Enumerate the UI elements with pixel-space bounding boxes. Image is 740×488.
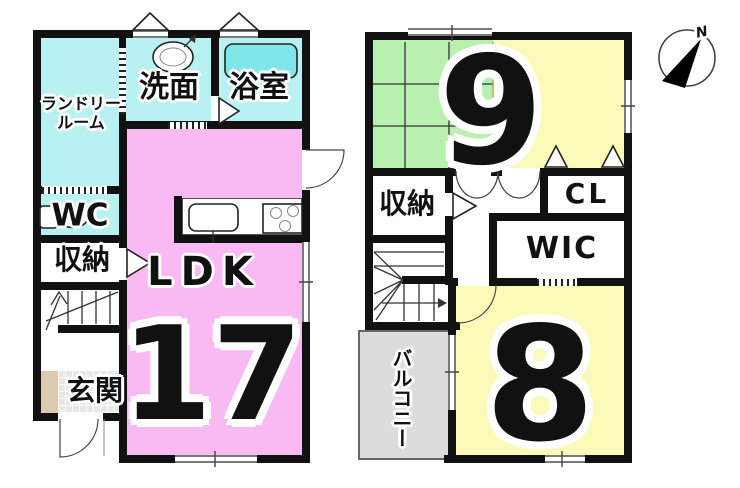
cl-label: CL [565,177,609,211]
wic-label: WIC [526,231,598,267]
laundry-label-line1: ランドリー [41,94,121,113]
room8-size-label: 8 [485,291,595,481]
stove-icon [263,204,302,233]
awning-window-icon [133,13,168,30]
stairs-2f-icon [374,252,447,321]
sink-icon [153,34,196,72]
kitchen-sink-icon [189,204,238,243]
balcony-label: バルコニー [389,348,413,448]
ldk-label: LDK [147,248,261,296]
stairs-1f-icon [46,291,118,330]
laundry-label: ランドリー ルーム [41,94,121,132]
closet-door-triangle-icon [602,146,624,167]
awning-window-icon [220,13,258,30]
storage-2f-label: 収納 [379,187,435,221]
stairs-arrow-icon [438,298,447,308]
washroom-label: 洗面 [139,70,199,106]
laundry-label-line2: ルーム [41,113,121,132]
ldk-size-label: 17 [122,296,303,452]
floor-plan: ランドリー ルーム 洗面 浴室 WC 収納 玄関 LDK 17 9 収納 CL … [0,0,740,488]
bathroom-label: 浴室 [229,70,289,106]
closet-door-triangle-icon [545,146,567,167]
wc-label: WC [52,197,109,234]
storage-1f-label: 収納 [54,243,110,277]
entrance-door-arc [60,419,104,457]
plan-detail-overlay [0,0,740,488]
entrance-label: 玄関 [67,374,123,408]
room9-size-label: 9 [439,22,543,202]
ldk-door-arc [306,150,344,188]
